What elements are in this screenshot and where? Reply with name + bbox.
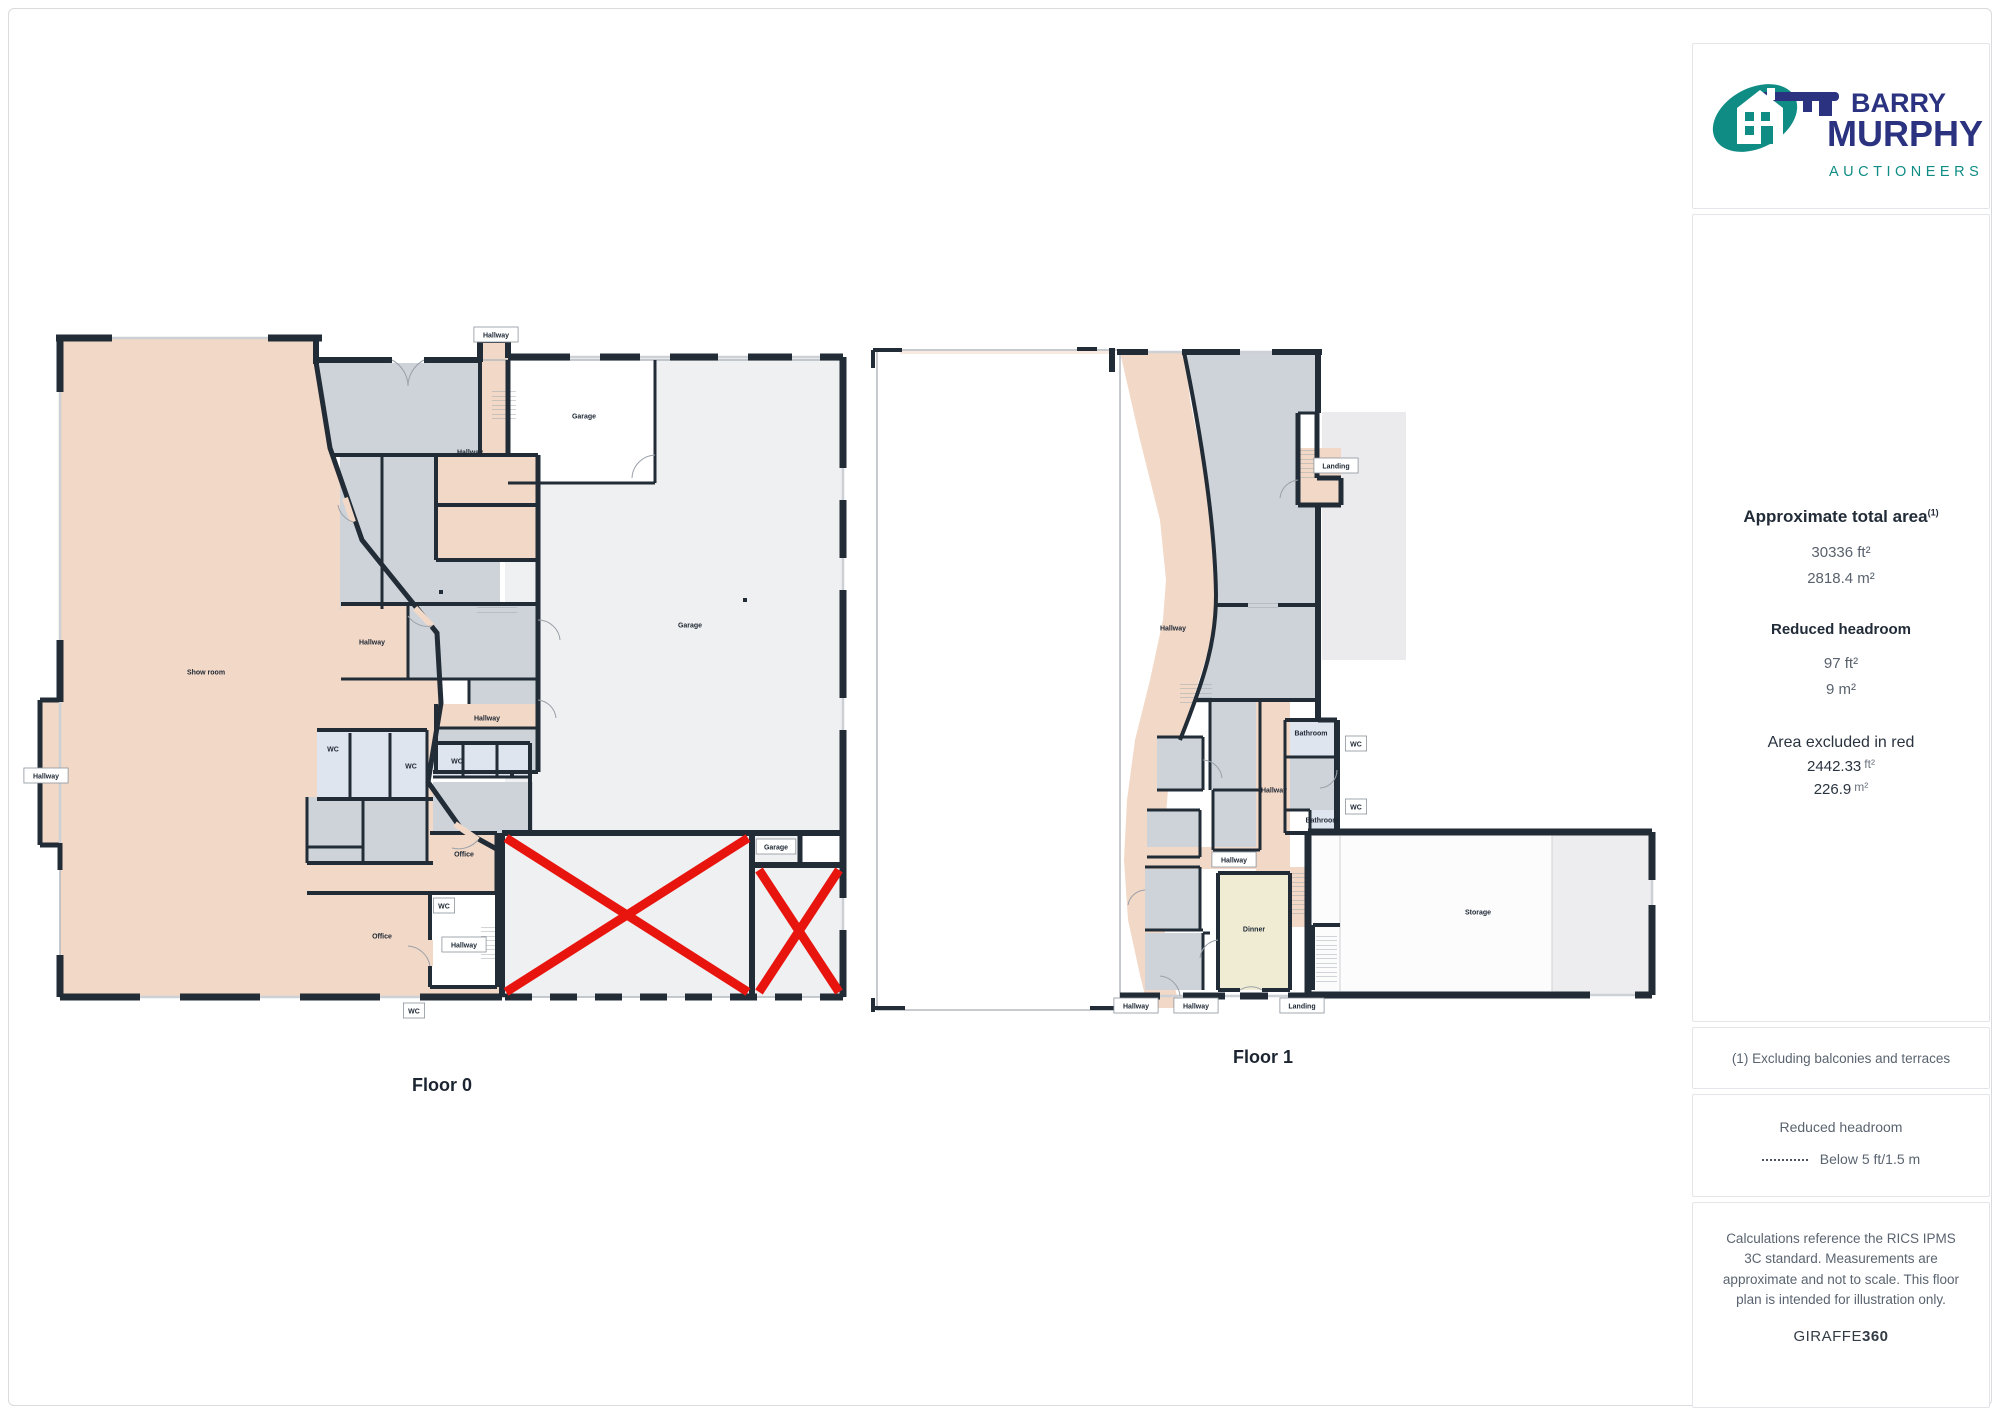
approx-area-m: 2818.4 m²	[1693, 570, 1989, 587]
room-label: Storage	[1465, 910, 1491, 917]
room-label: WC	[327, 747, 339, 754]
room-label: Office	[372, 934, 392, 941]
room-label: Hallway	[33, 774, 59, 781]
floor1-caption: Floor 1	[1233, 1047, 1293, 1068]
room-label: Hallway	[483, 333, 509, 340]
floor0-plan: Show roomGarageGarageHallwayHallwayHallw…	[24, 327, 843, 1018]
room-label: WC	[1350, 805, 1362, 812]
room-label: Bathroom	[1305, 818, 1338, 825]
room-label: Office	[454, 852, 474, 859]
logo-text-murphy: MURPHY	[1827, 113, 1983, 154]
room-label: WC	[451, 759, 463, 766]
footnote-mark: (1)	[1928, 507, 1939, 517]
room-label: Hallway	[457, 450, 483, 457]
room-label: Garage	[764, 845, 788, 852]
approx-area-ft: 30336 ft²	[1693, 544, 1989, 561]
room-label: Hallway	[1221, 858, 1247, 865]
excluded-area-m: 226.9m²	[1693, 781, 1989, 798]
room-label: Dinner	[1243, 927, 1265, 934]
floor0-caption: Floor 0	[412, 1075, 472, 1096]
approx-area-title: Approximate total area(1)	[1693, 507, 1989, 527]
room-label: Hallway	[359, 640, 385, 647]
legend-row: Below 5 ft/1.5 m	[1693, 1151, 1989, 1167]
barry-murphy-logo: BARRY MURPHY AUCTIONEERS	[1703, 52, 1983, 202]
footnote-card: (1) Excluding balconies and terraces	[1692, 1027, 1990, 1089]
room-label: WC	[1350, 742, 1362, 749]
reduced-headroom-title: Reduced headroom	[1693, 621, 1989, 638]
room-label: Garage	[678, 623, 702, 630]
logo-card: BARRY MURPHY AUCTIONEERS	[1692, 43, 1990, 209]
room-label: Garage	[572, 414, 596, 421]
disclaimer-text: Calculations reference the RICS IPMS 3C …	[1719, 1229, 1963, 1310]
room-label: WC	[438, 904, 450, 911]
room-label: Hallway	[1123, 1004, 1149, 1011]
legend-label: Below 5 ft/1.5 m	[1820, 1151, 1920, 1167]
excluded-area-title: Area excluded in red	[1693, 734, 1989, 752]
floorplan-page: Show roomGarageGarageHallwayHallwayHallw…	[0, 0, 2000, 1414]
room-label: Hallway	[451, 943, 477, 950]
reduced-headroom-m: 9 m²	[1693, 681, 1989, 698]
floor1-plan: HallwayBathroomBathroomDinnerStorageHall…	[873, 348, 1652, 1013]
room-label: Hallway	[474, 716, 500, 723]
reduced-headroom-ft: 97 ft²	[1693, 655, 1989, 672]
room-label: Hallway	[1183, 1004, 1209, 1011]
area-stats-card: Approximate total area(1) 30336 ft² 2818…	[1692, 214, 1990, 1022]
legend-card: Reduced headroom Below 5 ft/1.5 m	[1692, 1094, 1990, 1197]
room-label: Landing	[1322, 464, 1349, 471]
legend-title: Reduced headroom	[1693, 1119, 1989, 1135]
giraffe360-brand: GIRAFFE360	[1693, 1328, 1989, 1345]
logo-text-auctioneers: AUCTIONEERS	[1829, 164, 1983, 180]
room-label: WC	[408, 1009, 420, 1016]
room-label: WC	[405, 764, 417, 771]
room-label: Hallway	[1160, 626, 1186, 633]
room-label: Hallway	[1261, 788, 1287, 795]
room-label: Bathroom	[1294, 731, 1327, 738]
disclaimer-card: Calculations reference the RICS IPMS 3C …	[1692, 1202, 1990, 1408]
excluded-area-ft: 2442.33ft²	[1693, 758, 1989, 775]
footnote-text: (1) Excluding balconies and terraces	[1714, 1051, 1968, 1066]
dotted-line-icon	[1762, 1159, 1808, 1161]
room-label: Show room	[187, 670, 225, 677]
room-label: Landing	[1288, 1004, 1315, 1011]
